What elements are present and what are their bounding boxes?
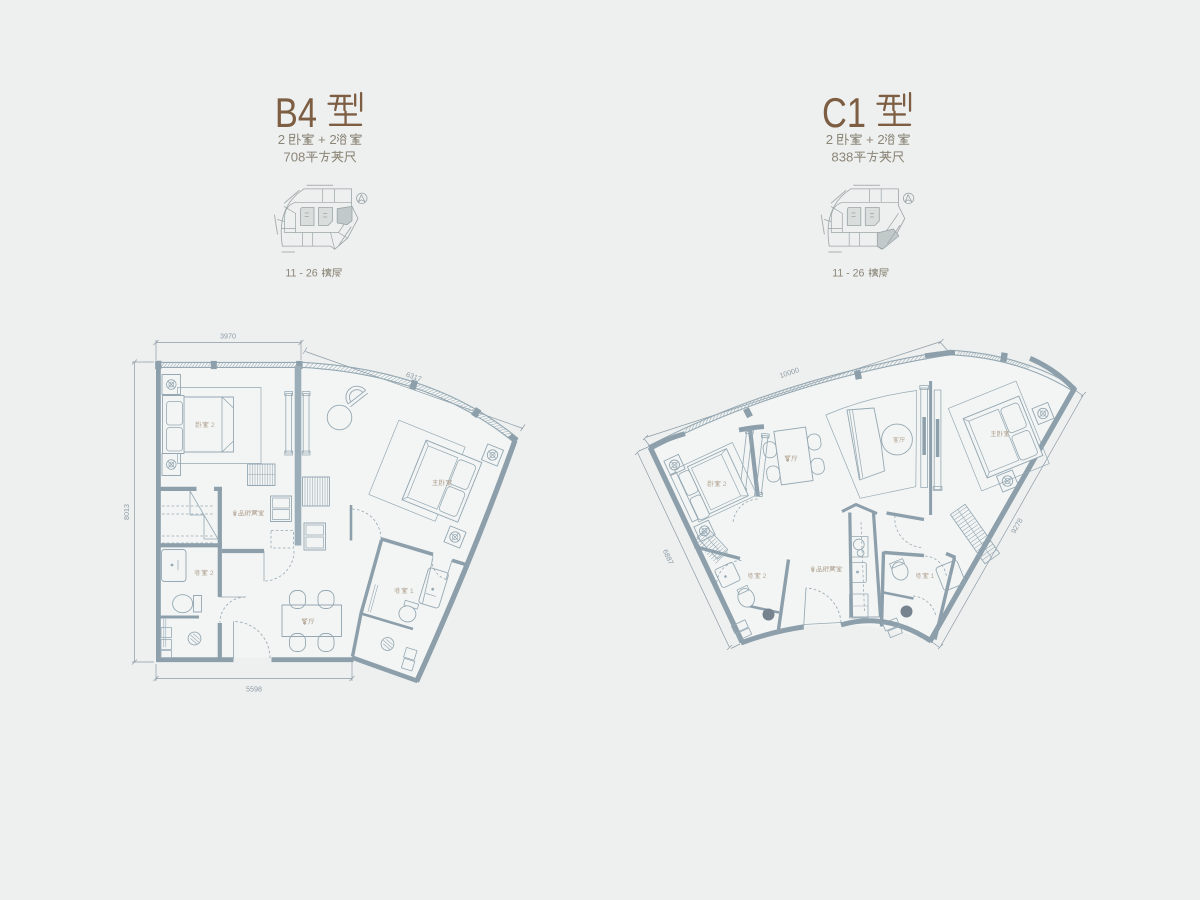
svg-text:8013: 8013 <box>122 504 131 520</box>
svg-text:2: 2 <box>209 422 215 429</box>
svg-text:2: 2 <box>721 481 727 488</box>
svg-text:11 - 26: 11 - 26 <box>285 268 320 280</box>
svg-text:1: 1 <box>408 588 414 595</box>
svg-text:2: 2 <box>826 132 837 147</box>
svg-text:2: 2 <box>278 132 289 147</box>
svg-text:5598: 5598 <box>246 685 262 694</box>
svg-text:1: 1 <box>929 573 935 580</box>
svg-text:708: 708 <box>283 150 305 165</box>
svg-text:2: 2 <box>208 570 214 577</box>
svg-text:+ 2: + 2 <box>862 132 884 147</box>
svg-text:838: 838 <box>831 150 853 165</box>
svg-text:3970: 3970 <box>220 332 236 341</box>
svg-text:11 - 26: 11 - 26 <box>832 268 867 280</box>
svg-text:B4: B4 <box>275 89 317 136</box>
svg-text:+ 2: + 2 <box>314 132 336 147</box>
svg-text:C1: C1 <box>822 89 866 136</box>
svg-text:2: 2 <box>761 573 767 580</box>
